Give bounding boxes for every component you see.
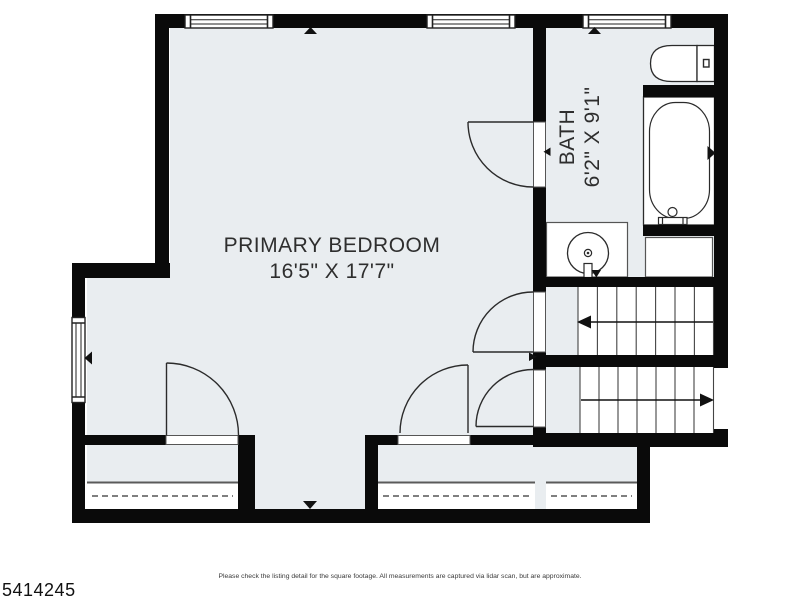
bathtub-icon — [644, 97, 715, 225]
room-name: BATH — [555, 87, 580, 188]
bath-label: BATH 6'2" X 9'1" — [555, 87, 605, 188]
floorplan-page: PRIMARY BEDROOM 16'5" X 17'7" BATH 6'2" … — [0, 0, 800, 600]
room-dimensions: 6'2" X 9'1" — [580, 87, 605, 188]
listing-id: 5414245 — [2, 580, 76, 600]
floorplan-drawing — [0, 0, 800, 600]
toilet-icon — [651, 46, 715, 82]
room-dimensions: 16'5" X 17'7" — [224, 259, 441, 285]
counter — [646, 238, 713, 278]
window-icon — [427, 15, 515, 28]
window-icon — [583, 15, 671, 28]
window-icon — [72, 318, 85, 403]
primary-bedroom-label: PRIMARY BEDROOM 16'5" X 17'7" — [224, 233, 441, 285]
sink-vanity — [547, 223, 628, 278]
window-icon — [185, 15, 273, 28]
room-name: PRIMARY BEDROOM — [224, 233, 441, 259]
staircase-up — [578, 287, 714, 355]
disclaimer-text: Please check the listing detail for the … — [0, 573, 800, 580]
